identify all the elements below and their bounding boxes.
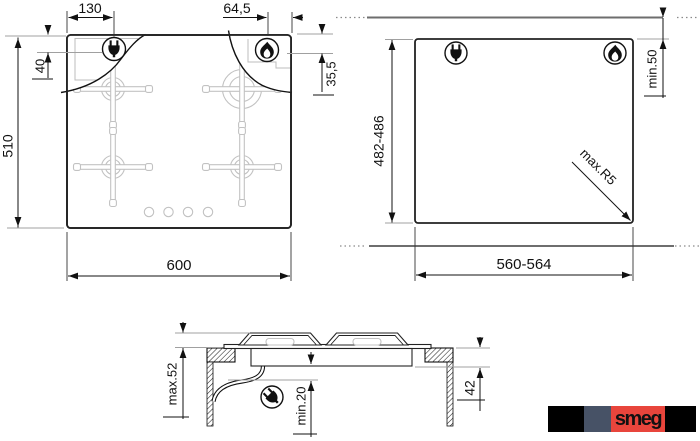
dim-recess-depth: 42 (462, 380, 478, 396)
top-view: 130 64,5 40 35,5 510 600 (0, 0, 339, 281)
dim-cutout-depth: 482-486 (371, 115, 387, 167)
side-view: max.52 min.20 42 (163, 322, 490, 437)
installation-drawing: 130 64,5 40 35,5 510 600 (0, 0, 700, 441)
power-plug-icon (250, 375, 294, 419)
power-cable (214, 366, 264, 402)
logo-wordmark: smeg (615, 408, 662, 430)
cabinet-wall-left (207, 362, 213, 426)
logo-slate-block (584, 406, 611, 432)
power-plug-icon (445, 42, 467, 64)
dim-total-depth: 510 (0, 134, 16, 158)
dim-total-width: 600 (166, 257, 191, 274)
gas-flame-icon (604, 42, 626, 64)
cabinet-wall-right (447, 362, 453, 426)
dim-cutout-width: 560-564 (496, 256, 551, 273)
hob-body (251, 349, 412, 367)
cutout-view: min.50 482-486 max.R5 560-564 (336, 9, 699, 282)
dim-plug-offset-x: 130 (78, 0, 102, 16)
dim-rear-clearance: min.50 (645, 49, 660, 88)
dim-gas-offset-x: 64,5 (223, 0, 250, 16)
dim-plug-offset-y: 40 (33, 59, 48, 73)
dim-gas-offset-y: 35,5 (324, 61, 339, 86)
brand-logo: smeg (548, 406, 696, 432)
drawing-canvas: 130 64,5 40 35,5 510 600 (0, 0, 700, 441)
worktop-section-left (207, 348, 235, 362)
dim-height-above: max.52 (165, 363, 180, 406)
power-plug-icon (103, 38, 126, 61)
cutout-rect (415, 39, 633, 223)
pan-support-left (239, 333, 321, 345)
worktop-section-right (425, 348, 453, 362)
dim-clearance-below: min.20 (294, 386, 309, 425)
pan-support-right (326, 333, 408, 345)
gas-flame-icon (256, 39, 279, 62)
